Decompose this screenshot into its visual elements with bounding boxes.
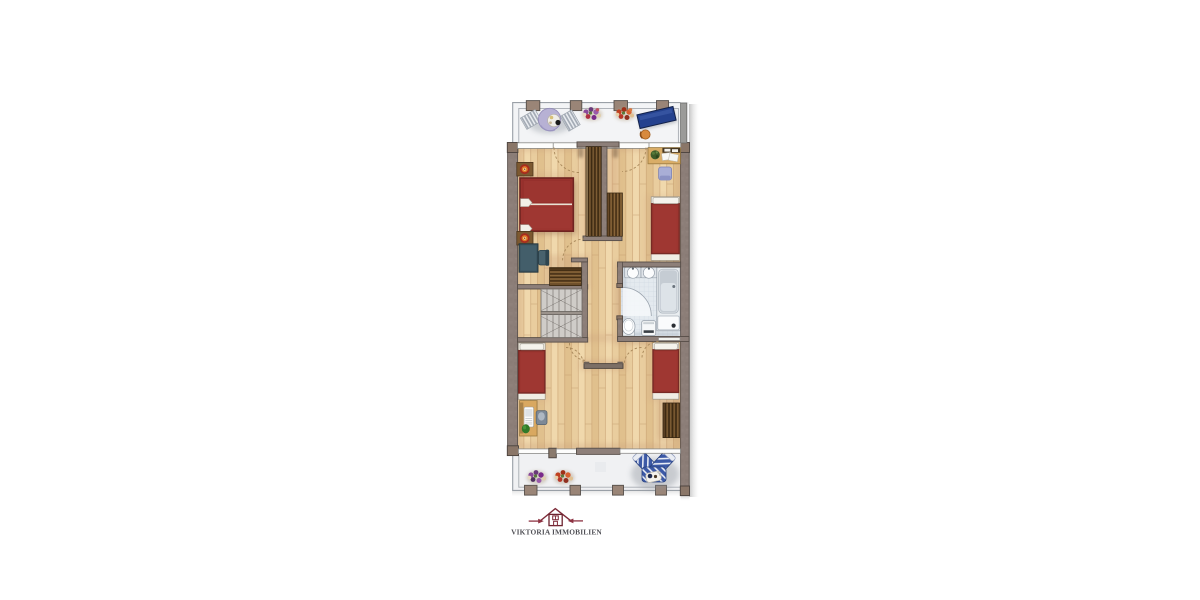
svg-text:VIKTORIA IMMOBILIEN: VIKTORIA IMMOBILIEN bbox=[511, 528, 602, 537]
